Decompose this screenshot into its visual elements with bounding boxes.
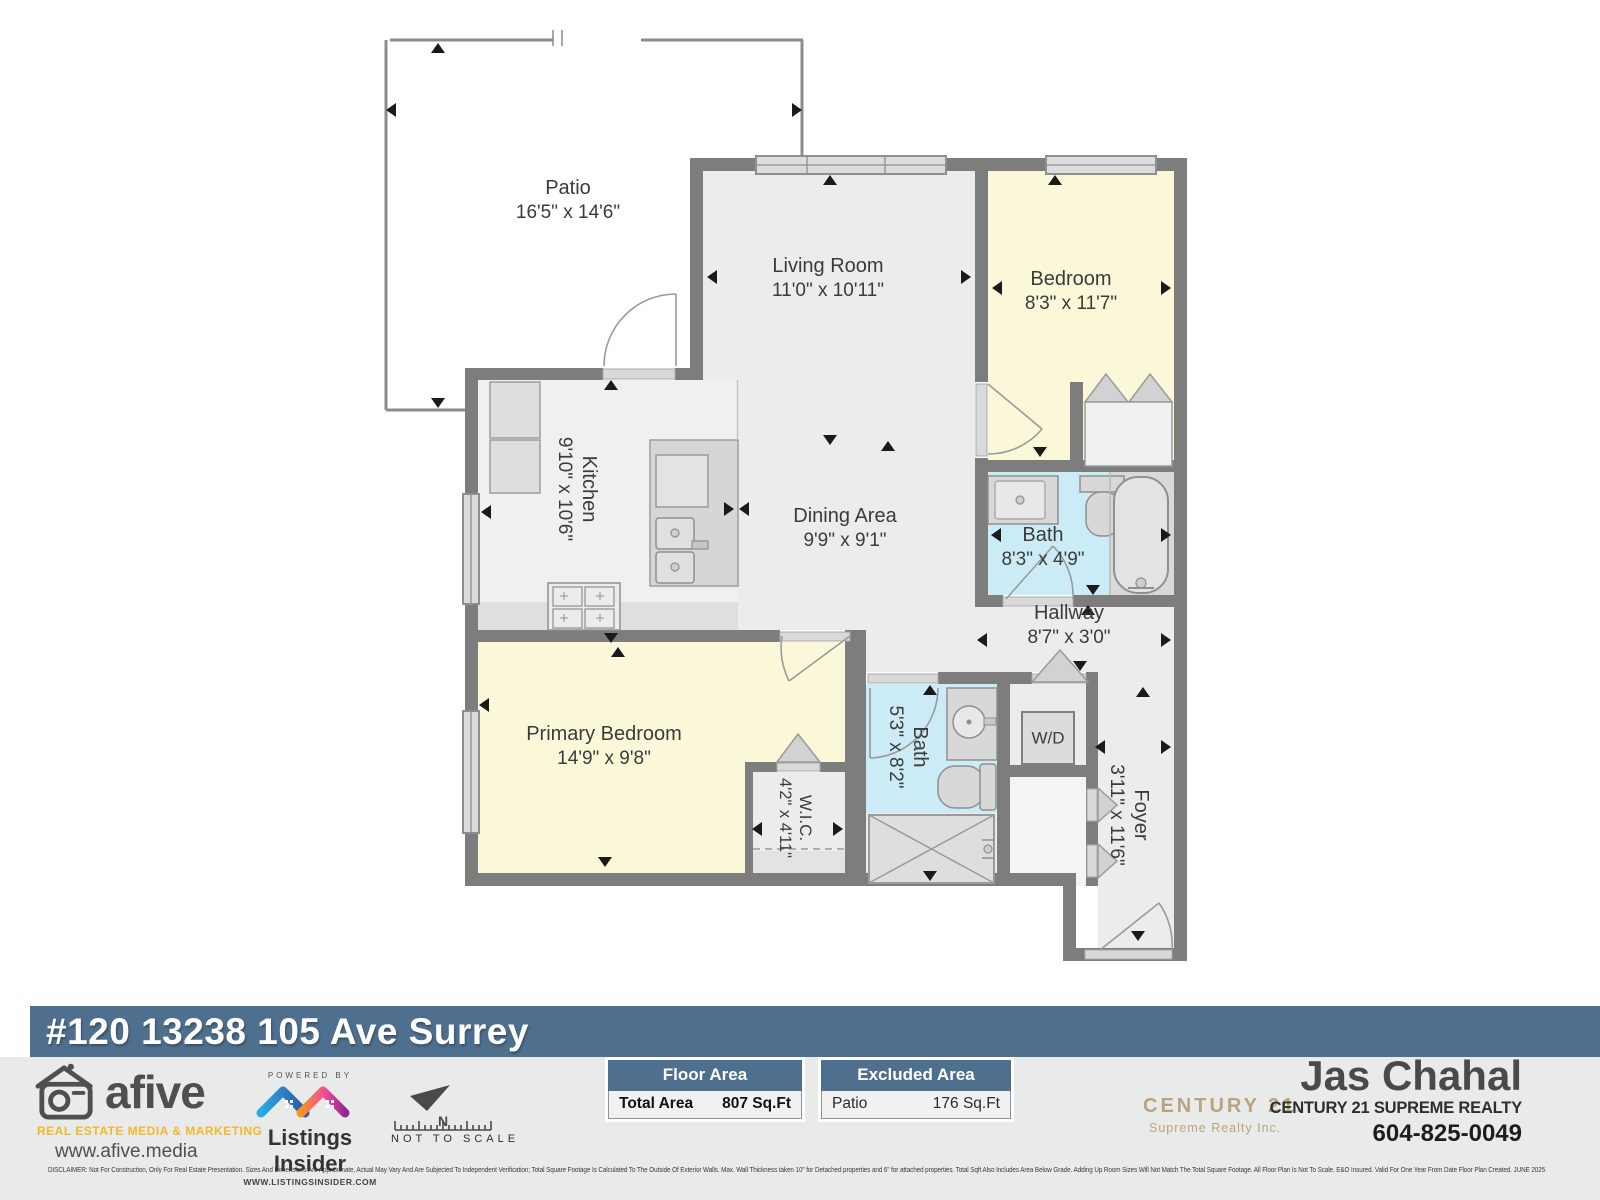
afive-camera-icon — [35, 1063, 97, 1121]
room-dims: 9'9" x 9'1" — [793, 529, 896, 553]
excluded-area-table: Excluded Area Patio 176 Sq.Ft — [818, 1057, 1014, 1122]
room-name: Living Room — [772, 254, 884, 279]
floor-plan: Patio 16'5" x 14'6" Living Room 11'0" x … — [0, 0, 1600, 975]
room-label-bath2: Bath 5'3" x 8'2" — [884, 705, 932, 788]
room-label-hallway: Hallway 8'7" x 3'0" — [1027, 601, 1110, 649]
row-value: 176 Sq.Ft — [933, 1095, 1000, 1113]
row-label: Total Area — [619, 1095, 693, 1113]
room-name: Primary Bedroom — [526, 722, 682, 747]
room-label-primary: Primary Bedroom 14'9" x 9'8" — [526, 722, 682, 770]
listings-insider-icon — [255, 1082, 365, 1118]
room-label-bedroom: Bedroom 8'3" x 11'7" — [1025, 267, 1117, 315]
room-label-foyer: Foyer 3'11" x 11'6" — [1105, 764, 1153, 865]
room-label-bath1: Bath 8'3" x 4'9" — [1001, 523, 1084, 571]
room-name: W.I.C. — [795, 778, 816, 858]
room-label-dining: Dining Area 9'9" x 9'1" — [793, 504, 896, 552]
room-dims: 16'5" x 14'6" — [516, 201, 620, 225]
room-dims: 14'9" x 9'8" — [526, 747, 682, 771]
afive-logo: afive — [35, 1063, 205, 1121]
room-name: Bedroom — [1025, 267, 1117, 292]
room-name: Hallway — [1027, 601, 1110, 626]
room-name: Patio — [516, 176, 620, 201]
property-address: #120 13238 105 Ave Surrey — [46, 1011, 529, 1053]
room-name: Kitchen — [576, 437, 601, 541]
room-name: Bath — [907, 705, 932, 788]
room-label-wic: W.I.C. 4'2" x 4'11" — [774, 778, 816, 858]
room-name: W/D — [1031, 727, 1064, 748]
disclaimer-text: DISCLAIMER: Not For Construction, Only F… — [48, 1165, 1544, 1174]
agent-company: CENTURY 21 SUPREME REALTY — [1270, 1099, 1522, 1118]
room-name: Foyer — [1128, 764, 1153, 865]
room-dims: 5'3" x 8'2" — [884, 705, 908, 788]
ruler-icon — [393, 1118, 493, 1132]
powered-by-label: POWERED BY — [225, 1071, 395, 1080]
agent-block: Jas Chahal CENTURY 21 SUPREME REALTY 604… — [1270, 1054, 1522, 1148]
room-dims: 8'7" x 3'0" — [1027, 626, 1110, 650]
room-name: Bath — [1001, 523, 1084, 548]
afive-wordmark: afive — [105, 1065, 205, 1119]
floor-area-title: Floor Area — [608, 1060, 802, 1091]
table-row: Patio 176 Sq.Ft — [821, 1091, 1011, 1119]
row-label: Patio — [832, 1095, 867, 1113]
not-to-scale-label: NOT TO SCALE — [391, 1133, 519, 1145]
bedroom-closet-shelf — [1085, 402, 1172, 466]
room-label-patio: Patio 16'5" x 14'6" — [516, 176, 620, 224]
agent-name: Jas Chahal — [1270, 1054, 1522, 1098]
room-label-kitchen: Kitchen 9'10" x 10'6" — [553, 437, 601, 541]
room-dims: 8'3" x 11'7" — [1025, 292, 1117, 316]
room-dims: 11'0" x 10'11" — [772, 279, 884, 303]
room-dims: 8'3" x 4'9" — [1001, 548, 1084, 572]
room-dims: 3'11" x 11'6" — [1105, 764, 1129, 865]
address-banner: #120 13238 105 Ave Surrey — [30, 1006, 1600, 1057]
table-row: Total Area 807 Sq.Ft — [608, 1091, 802, 1119]
afive-website[interactable]: www.afive.media — [55, 1141, 198, 1163]
room-dims: 4'2" x 4'11" — [774, 778, 794, 858]
room-name: Dining Area — [793, 504, 896, 529]
row-value: 807 Sq.Ft — [722, 1095, 791, 1113]
floor-area-table: Floor Area Total Area 807 Sq.Ft — [605, 1057, 805, 1122]
room-dims: 9'10" x 10'6" — [553, 437, 577, 541]
excluded-area-title: Excluded Area — [821, 1060, 1011, 1091]
listings-insider-website[interactable]: WWW.LISTINGSINSIDER.COM — [225, 1177, 395, 1187]
agent-phone[interactable]: 604-825-0049 — [1270, 1120, 1522, 1148]
room-label-wd: W/D — [1031, 727, 1064, 748]
room-label-living: Living Room 11'0" x 10'11" — [772, 254, 884, 302]
